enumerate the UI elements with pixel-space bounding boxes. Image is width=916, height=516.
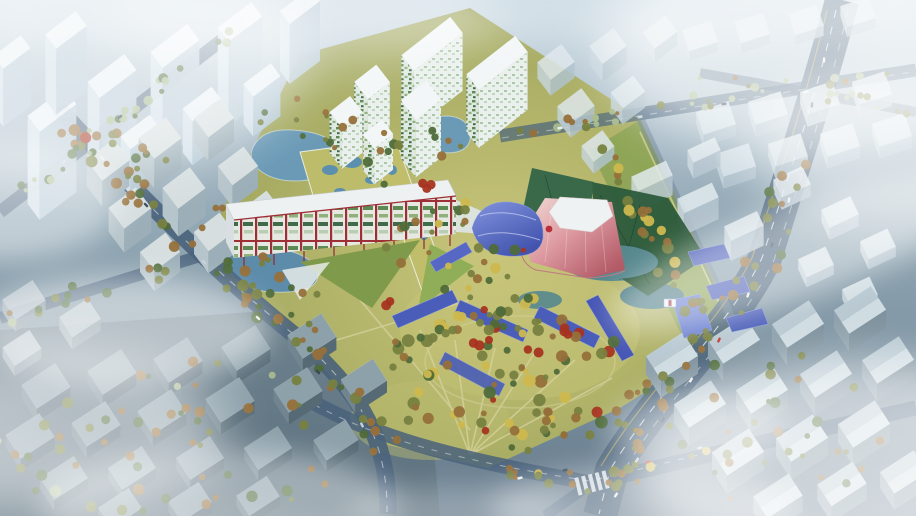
masterplan-aerial-rendering [0, 0, 916, 516]
fog-top-band [0, 0, 916, 46]
fog-overlay [0, 0, 916, 516]
fog-wisp-se [610, 390, 790, 470]
aerial-render-viewport [0, 0, 916, 516]
